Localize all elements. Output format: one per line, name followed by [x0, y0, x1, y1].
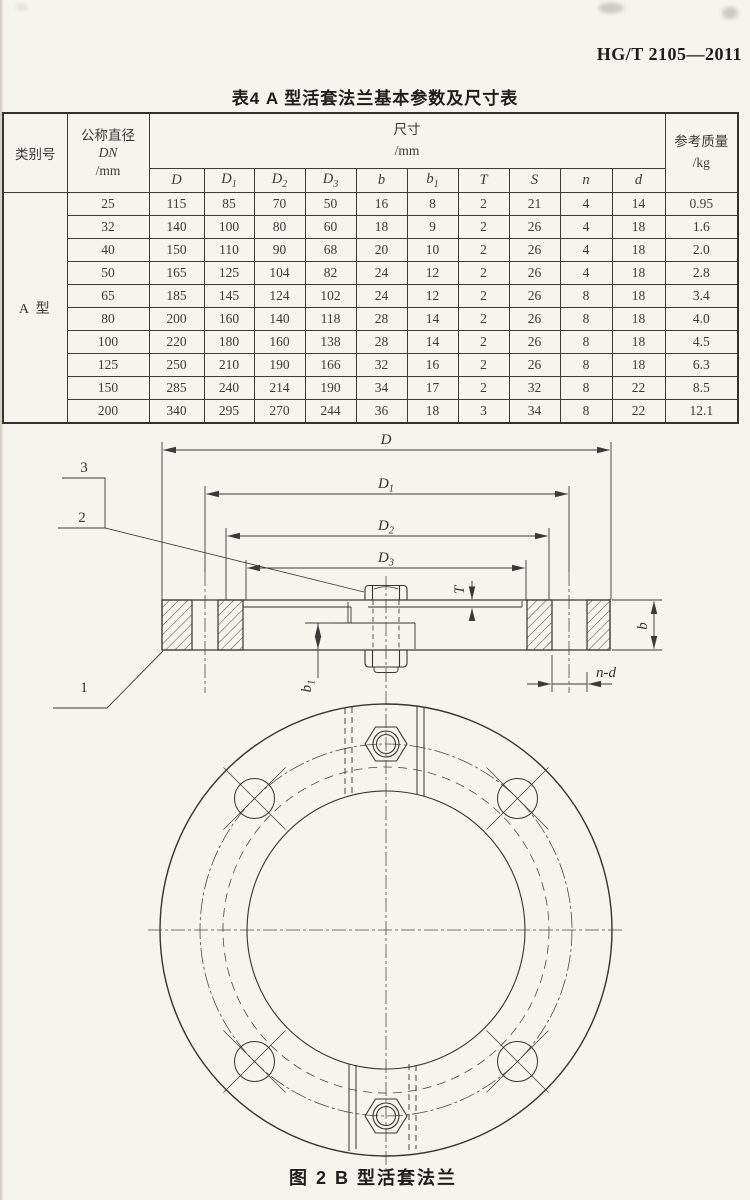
dimension-cell: 20: [356, 239, 407, 262]
dimension-cell: 160: [254, 331, 305, 354]
dim-label-T: T: [452, 584, 468, 594]
dn-cell: 25: [67, 193, 149, 216]
dimension-cell: 2: [458, 239, 509, 262]
mass-cell: 4.0: [665, 308, 738, 331]
dimension-cell: 4: [560, 216, 612, 239]
dim-column-header: b1: [407, 169, 458, 193]
dimension-cell: 140: [149, 216, 204, 239]
category-cell: A 型: [3, 193, 67, 424]
dimension-cell: 18: [356, 216, 407, 239]
dn-header-line3: /mm: [68, 162, 149, 180]
figure-caption: 图 2 B 型活套法兰: [0, 1164, 746, 1190]
dimension-cell: 2: [458, 216, 509, 239]
dim-column-header: b: [356, 169, 407, 193]
dimension-cell: 14: [407, 331, 458, 354]
dim-column-header: T: [458, 169, 509, 193]
dimension-cell: 12: [407, 285, 458, 308]
dimension-cell: 115: [149, 193, 204, 216]
dimension-cell: 138: [305, 331, 356, 354]
dimension-cell: 28: [356, 331, 407, 354]
dimension-cell: 2: [458, 308, 509, 331]
dimension-cell: 2: [458, 354, 509, 377]
dimension-cell: 24: [356, 285, 407, 308]
dimension-cell: 8: [407, 193, 458, 216]
dn-header-line2: DN: [68, 144, 149, 162]
dn-header-line1: 公称直径: [68, 127, 149, 145]
dimension-cell: 68: [305, 239, 356, 262]
table-row: A 型251158570501682214140.95: [3, 193, 738, 216]
col-header-mass: 参考质量 /kg: [665, 113, 738, 193]
dimension-cell: 102: [305, 285, 356, 308]
dim-column-header: D1: [204, 169, 254, 193]
hatch-right-outer: [587, 600, 610, 650]
dimension-cell: 150: [149, 239, 204, 262]
dimension-cell: 60: [305, 216, 356, 239]
col-header-dn: 公称直径 DN /mm: [67, 113, 149, 193]
dn-cell: 32: [67, 216, 149, 239]
dim-label-b: b: [635, 622, 651, 630]
table-row: 12525021019016632162268186.3: [3, 354, 738, 377]
dn-cell: 40: [67, 239, 149, 262]
dimension-cell: 2: [458, 331, 509, 354]
dn-cell: 150: [67, 377, 149, 400]
scan-artifact: [16, 4, 28, 10]
dimension-cell: 185: [149, 285, 204, 308]
dimension-cell: 8: [560, 377, 612, 400]
table-row: 8020016014011828142268184.0: [3, 308, 738, 331]
mass-cell: 3.4: [665, 285, 738, 308]
mass-header-line2: /kg: [666, 153, 738, 174]
dim-label-nd: n-d: [596, 665, 616, 681]
dimension-cell: 18: [612, 239, 665, 262]
callout-3: 3: [80, 460, 88, 476]
dimension-cell: 285: [149, 377, 204, 400]
dimension-cell: 26: [509, 331, 560, 354]
flange-parameter-table: 类别号 公称直径 DN /mm 尺寸 /mm 参考质量 /kg DD1D2D3b…: [2, 112, 739, 424]
dimension-cell: 26: [509, 216, 560, 239]
dimension-cell: 8: [560, 308, 612, 331]
dimension-cell: 166: [305, 354, 356, 377]
dim-label-b1: b1: [299, 680, 318, 693]
dimension-cell: 214: [254, 377, 305, 400]
dimension-cell: 22: [612, 377, 665, 400]
dimension-cell: 32: [356, 354, 407, 377]
mass-cell: 2.0: [665, 239, 738, 262]
dimension-cell: 14: [407, 308, 458, 331]
dimension-cell: 250: [149, 354, 204, 377]
dimension-cell: 26: [509, 239, 560, 262]
mass-header-line1: 参考质量: [666, 132, 738, 153]
size-header-line2: /mm: [150, 141, 665, 162]
dimension-cell: 4: [560, 193, 612, 216]
dimension-cell: 16: [407, 354, 458, 377]
mass-cell: 8.5: [665, 377, 738, 400]
flange-drawing: D D1 D2 D3: [0, 420, 750, 1200]
dimension-cell: 14: [612, 193, 665, 216]
dimension-cell: 8: [560, 285, 612, 308]
dn-cell: 80: [67, 308, 149, 331]
dimension-cell: 18: [612, 331, 665, 354]
dn-cell: 125: [67, 354, 149, 377]
standard-code: HG/T 2105—2011: [597, 44, 742, 65]
centerlines: [148, 572, 624, 1170]
dimension-cell: 80: [254, 216, 305, 239]
dimension-cell: 18: [612, 308, 665, 331]
dimension-cell: 8: [560, 354, 612, 377]
dimension-cell: 2: [458, 285, 509, 308]
dimension-cell: 165: [149, 262, 204, 285]
dimension-cell: 85: [204, 193, 254, 216]
dimension-cell: 210: [204, 354, 254, 377]
dimension-cell: 160: [204, 308, 254, 331]
seam-lines: [345, 706, 424, 1151]
table-row: 501651251048224122264182.8: [3, 262, 738, 285]
dimension-cell: 118: [305, 308, 356, 331]
hatch-left-outer: [162, 600, 192, 650]
scanned-standard-page: HG/T 2105—2011 表4 A 型活套法兰基本参数及尺寸表 类别号 公称…: [0, 0, 750, 1200]
table-row: 40150110906820102264182.0: [3, 239, 738, 262]
callout-leaders: [53, 478, 364, 708]
dim-column-header: S: [509, 169, 560, 193]
dimension-cell: 26: [509, 354, 560, 377]
callout-1-leader: [53, 651, 163, 708]
dimension-cell: 125: [204, 262, 254, 285]
dim-column-header: d: [612, 169, 665, 193]
dimension-cell: 190: [254, 354, 305, 377]
mass-cell: 6.3: [665, 354, 738, 377]
dimension-cell: 24: [356, 262, 407, 285]
dimension-cell: 2: [458, 377, 509, 400]
dimension-cell: 220: [149, 331, 204, 354]
callout-1: 1: [80, 680, 88, 696]
dimension-cell: 2: [458, 193, 509, 216]
dimension-cell: 17: [407, 377, 458, 400]
dimension-cell: 145: [204, 285, 254, 308]
table-title: 表4 A 型活套法兰基本参数及尺寸表: [0, 84, 750, 109]
dn-cell: 100: [67, 331, 149, 354]
table-row: 10022018016013828142268184.5: [3, 331, 738, 354]
dimension-cell: 90: [254, 239, 305, 262]
dn-cell: 50: [67, 262, 149, 285]
dimension-cell: 2: [458, 262, 509, 285]
dimension-cell: 9: [407, 216, 458, 239]
dimension-cell: 4: [560, 239, 612, 262]
dimension-cell: 18: [612, 262, 665, 285]
dim-column-header: n: [560, 169, 612, 193]
dimension-cell: 8: [560, 331, 612, 354]
scan-artifact: [598, 3, 624, 13]
callout-2-leader: [58, 528, 364, 592]
table-row: 3214010080601892264181.6: [3, 216, 738, 239]
dimension-cell: 18: [612, 354, 665, 377]
mass-cell: 1.6: [665, 216, 738, 239]
dimension-cell: 50: [305, 193, 356, 216]
col-header-category: 类别号: [3, 113, 67, 193]
dim-label-D2: D2: [377, 518, 395, 537]
table-row: 6518514512410224122268183.4: [3, 285, 738, 308]
size-header-line1: 尺寸: [150, 120, 665, 141]
table-row: 15028524021419034172328228.5: [3, 377, 738, 400]
scan-artifact: [722, 7, 738, 19]
dimension-cell: 82: [305, 262, 356, 285]
dim-column-header: D2: [254, 169, 305, 193]
stub-end-lines: [243, 601, 522, 649]
dimension-cell: 110: [204, 239, 254, 262]
dimension-cell: 100: [204, 216, 254, 239]
mass-cell: 2.8: [665, 262, 738, 285]
dimension-cell: 12: [407, 262, 458, 285]
dimension-cell: 140: [254, 308, 305, 331]
dimension-cell: 10: [407, 239, 458, 262]
dimension-cell: 21: [509, 193, 560, 216]
dimension-cell: 124: [254, 285, 305, 308]
dim-column-header: D: [149, 169, 204, 193]
col-header-size: 尺寸 /mm: [149, 113, 665, 169]
mass-cell: 0.95: [665, 193, 738, 216]
dimension-cell: 200: [149, 308, 204, 331]
dimension-cell: 70: [254, 193, 305, 216]
dimension-cell: 32: [509, 377, 560, 400]
hatch-right-inner: [527, 600, 552, 650]
dimension-cell: 34: [356, 377, 407, 400]
dimension-cell: 240: [204, 377, 254, 400]
dn-cell: 65: [67, 285, 149, 308]
dim-column-header: D3: [305, 169, 356, 193]
dimension-cell: 26: [509, 262, 560, 285]
dimension-cell: 18: [612, 216, 665, 239]
dimension-cell: 26: [509, 308, 560, 331]
dimension-cell: 190: [305, 377, 356, 400]
dimension-cell: 104: [254, 262, 305, 285]
dim-label-D1: D1: [377, 476, 394, 495]
dimension-cell: 180: [204, 331, 254, 354]
callout-2: 2: [78, 510, 86, 526]
dim-label-D3: D3: [377, 550, 394, 569]
dimension-cell: 16: [356, 193, 407, 216]
dim-label-D: D: [380, 432, 392, 448]
dimension-cell: 4: [560, 262, 612, 285]
mass-cell: 4.5: [665, 331, 738, 354]
dimension-cell: 18: [612, 285, 665, 308]
dimension-cell: 26: [509, 285, 560, 308]
dimension-cell: 28: [356, 308, 407, 331]
hatch-left-inner: [218, 600, 243, 650]
